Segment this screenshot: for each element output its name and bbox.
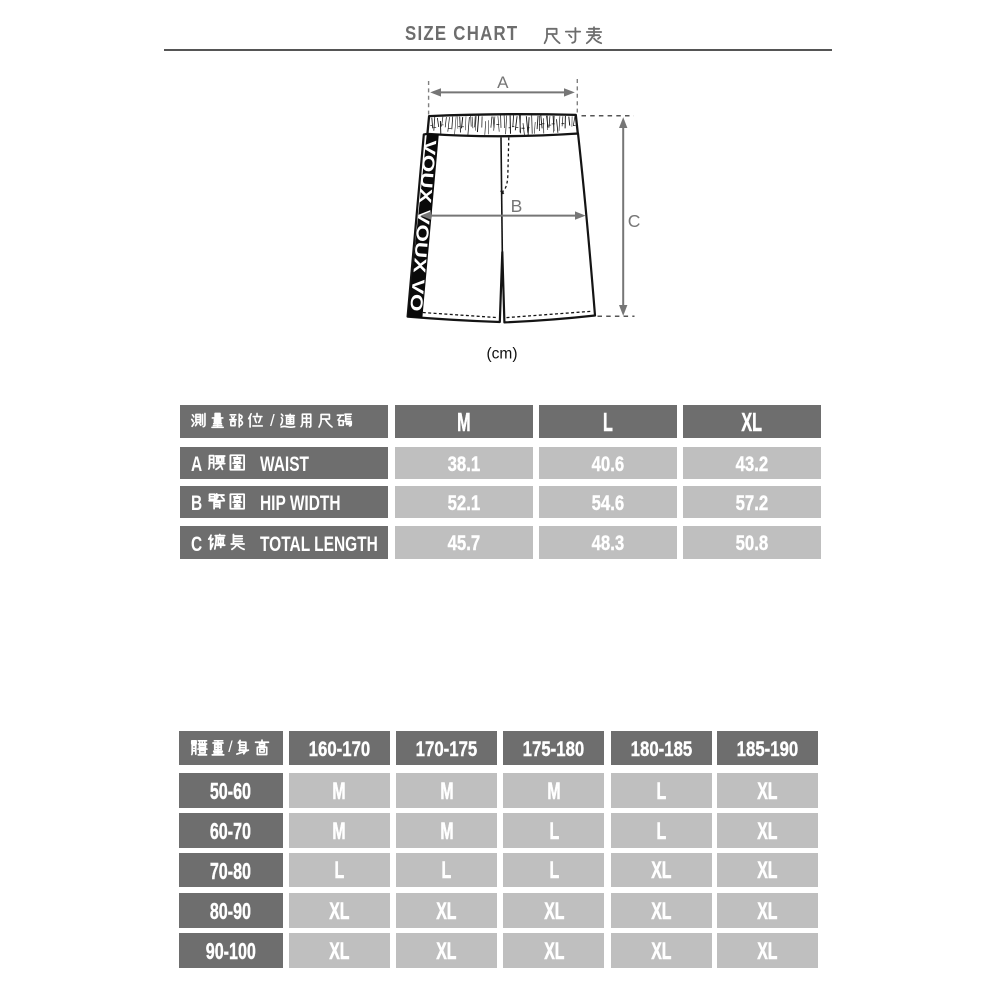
svg-text:B: B bbox=[511, 196, 523, 216]
svg-text:(cm): (cm) bbox=[487, 346, 518, 363]
svg-text:A: A bbox=[497, 73, 509, 92]
svg-text:C: C bbox=[628, 211, 641, 231]
